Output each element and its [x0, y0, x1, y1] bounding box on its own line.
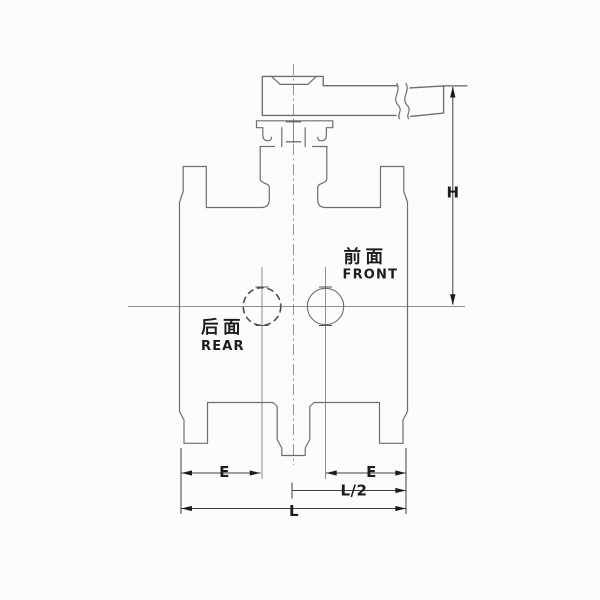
h-arrow-up [450, 87, 455, 98]
gland-hook-left [263, 128, 272, 141]
l-dimension-label: L [289, 502, 299, 520]
valve-engineering-drawing: H E E L/2 L 前面 FRONT 后面 REAR [0, 0, 600, 600]
l-half-dimension-label: L/2 [341, 482, 368, 500]
e-left-arrow-left [182, 470, 193, 475]
l-arrow-right [395, 506, 406, 511]
e-right-arrow-left [326, 470, 337, 475]
dimension-lines [181, 86, 468, 514]
handle-break-curve-1 [396, 84, 400, 119]
e-right-dimension-label: E [366, 463, 377, 481]
centerlines [128, 64, 465, 479]
handle-left-and-top [262, 76, 396, 115]
l-half-arrow-right [395, 488, 406, 493]
h-arrow-down [450, 294, 455, 305]
front-label-english: FRONT [343, 268, 399, 283]
gland-hook-right [318, 128, 327, 141]
e-left-arrow-right [250, 470, 260, 475]
handle-break-curve-2 [405, 84, 409, 119]
handle-end-piece [410, 86, 444, 117]
labels: H E E L/2 L 前面 FRONT 后面 REAR [201, 184, 460, 521]
h-dimension-label: H [447, 184, 460, 202]
front-label-chinese: 前面 [344, 247, 388, 268]
e-left-dimension-label: E [219, 463, 230, 481]
l-arrow-left [181, 506, 192, 511]
rear-label-chinese: 后面 [201, 318, 245, 338]
handle [262, 76, 443, 118]
e-right-arrow-right [395, 470, 406, 475]
rear-label-english: REAR [201, 339, 245, 354]
